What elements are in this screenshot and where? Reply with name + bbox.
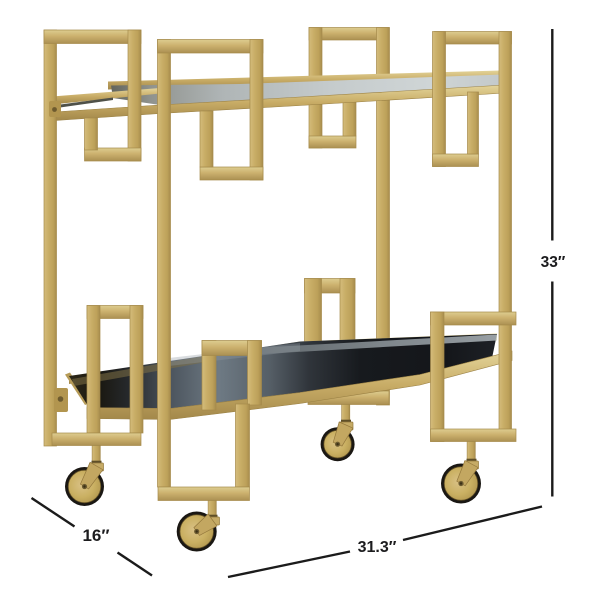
svg-text:31.3″: 31.3″ xyxy=(358,539,397,556)
svg-text:33″: 33″ xyxy=(541,254,566,271)
svg-text:16″: 16″ xyxy=(82,526,109,545)
